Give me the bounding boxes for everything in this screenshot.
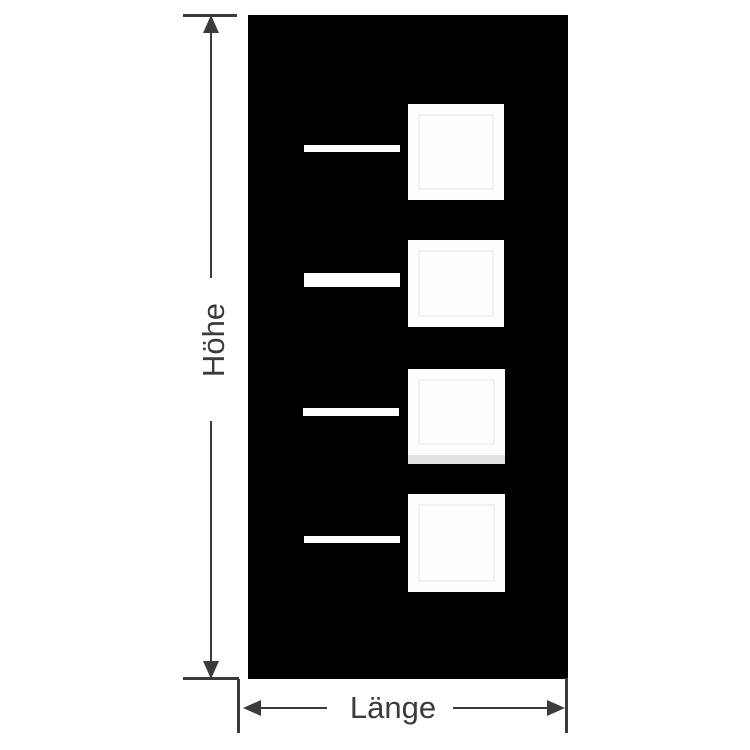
- window-inner-frame: [418, 114, 494, 190]
- length-dimension-line-right: [453, 707, 547, 709]
- slot-cutout: [304, 536, 400, 543]
- length-label: Länge: [333, 690, 453, 726]
- window-cutout: [408, 240, 504, 327]
- height-dimension-line-lower: [210, 421, 212, 662]
- window-cutout: [408, 369, 505, 455]
- length-extension-tick-right: [565, 678, 568, 733]
- window-cutout: [408, 104, 504, 200]
- arrow-right-icon: [547, 700, 565, 716]
- diagram-canvas: Höhe Länge: [0, 0, 750, 750]
- window-shadow-band: [408, 455, 505, 464]
- slot-cutout: [304, 273, 400, 287]
- slot-cutout: [304, 145, 400, 152]
- window-inner-frame: [418, 250, 494, 317]
- height-dimension-line-upper: [210, 31, 212, 278]
- window-inner-frame: [418, 379, 495, 445]
- height-extension-tick-bottom: [183, 677, 239, 680]
- length-dimension-line-left: [260, 707, 327, 709]
- window-cutout: [408, 494, 505, 592]
- arrow-left-icon: [243, 700, 261, 716]
- height-label: Höhe: [196, 286, 232, 394]
- slot-cutout: [303, 408, 399, 416]
- length-extension-tick-left: [237, 679, 240, 733]
- window-inner-frame: [418, 504, 495, 582]
